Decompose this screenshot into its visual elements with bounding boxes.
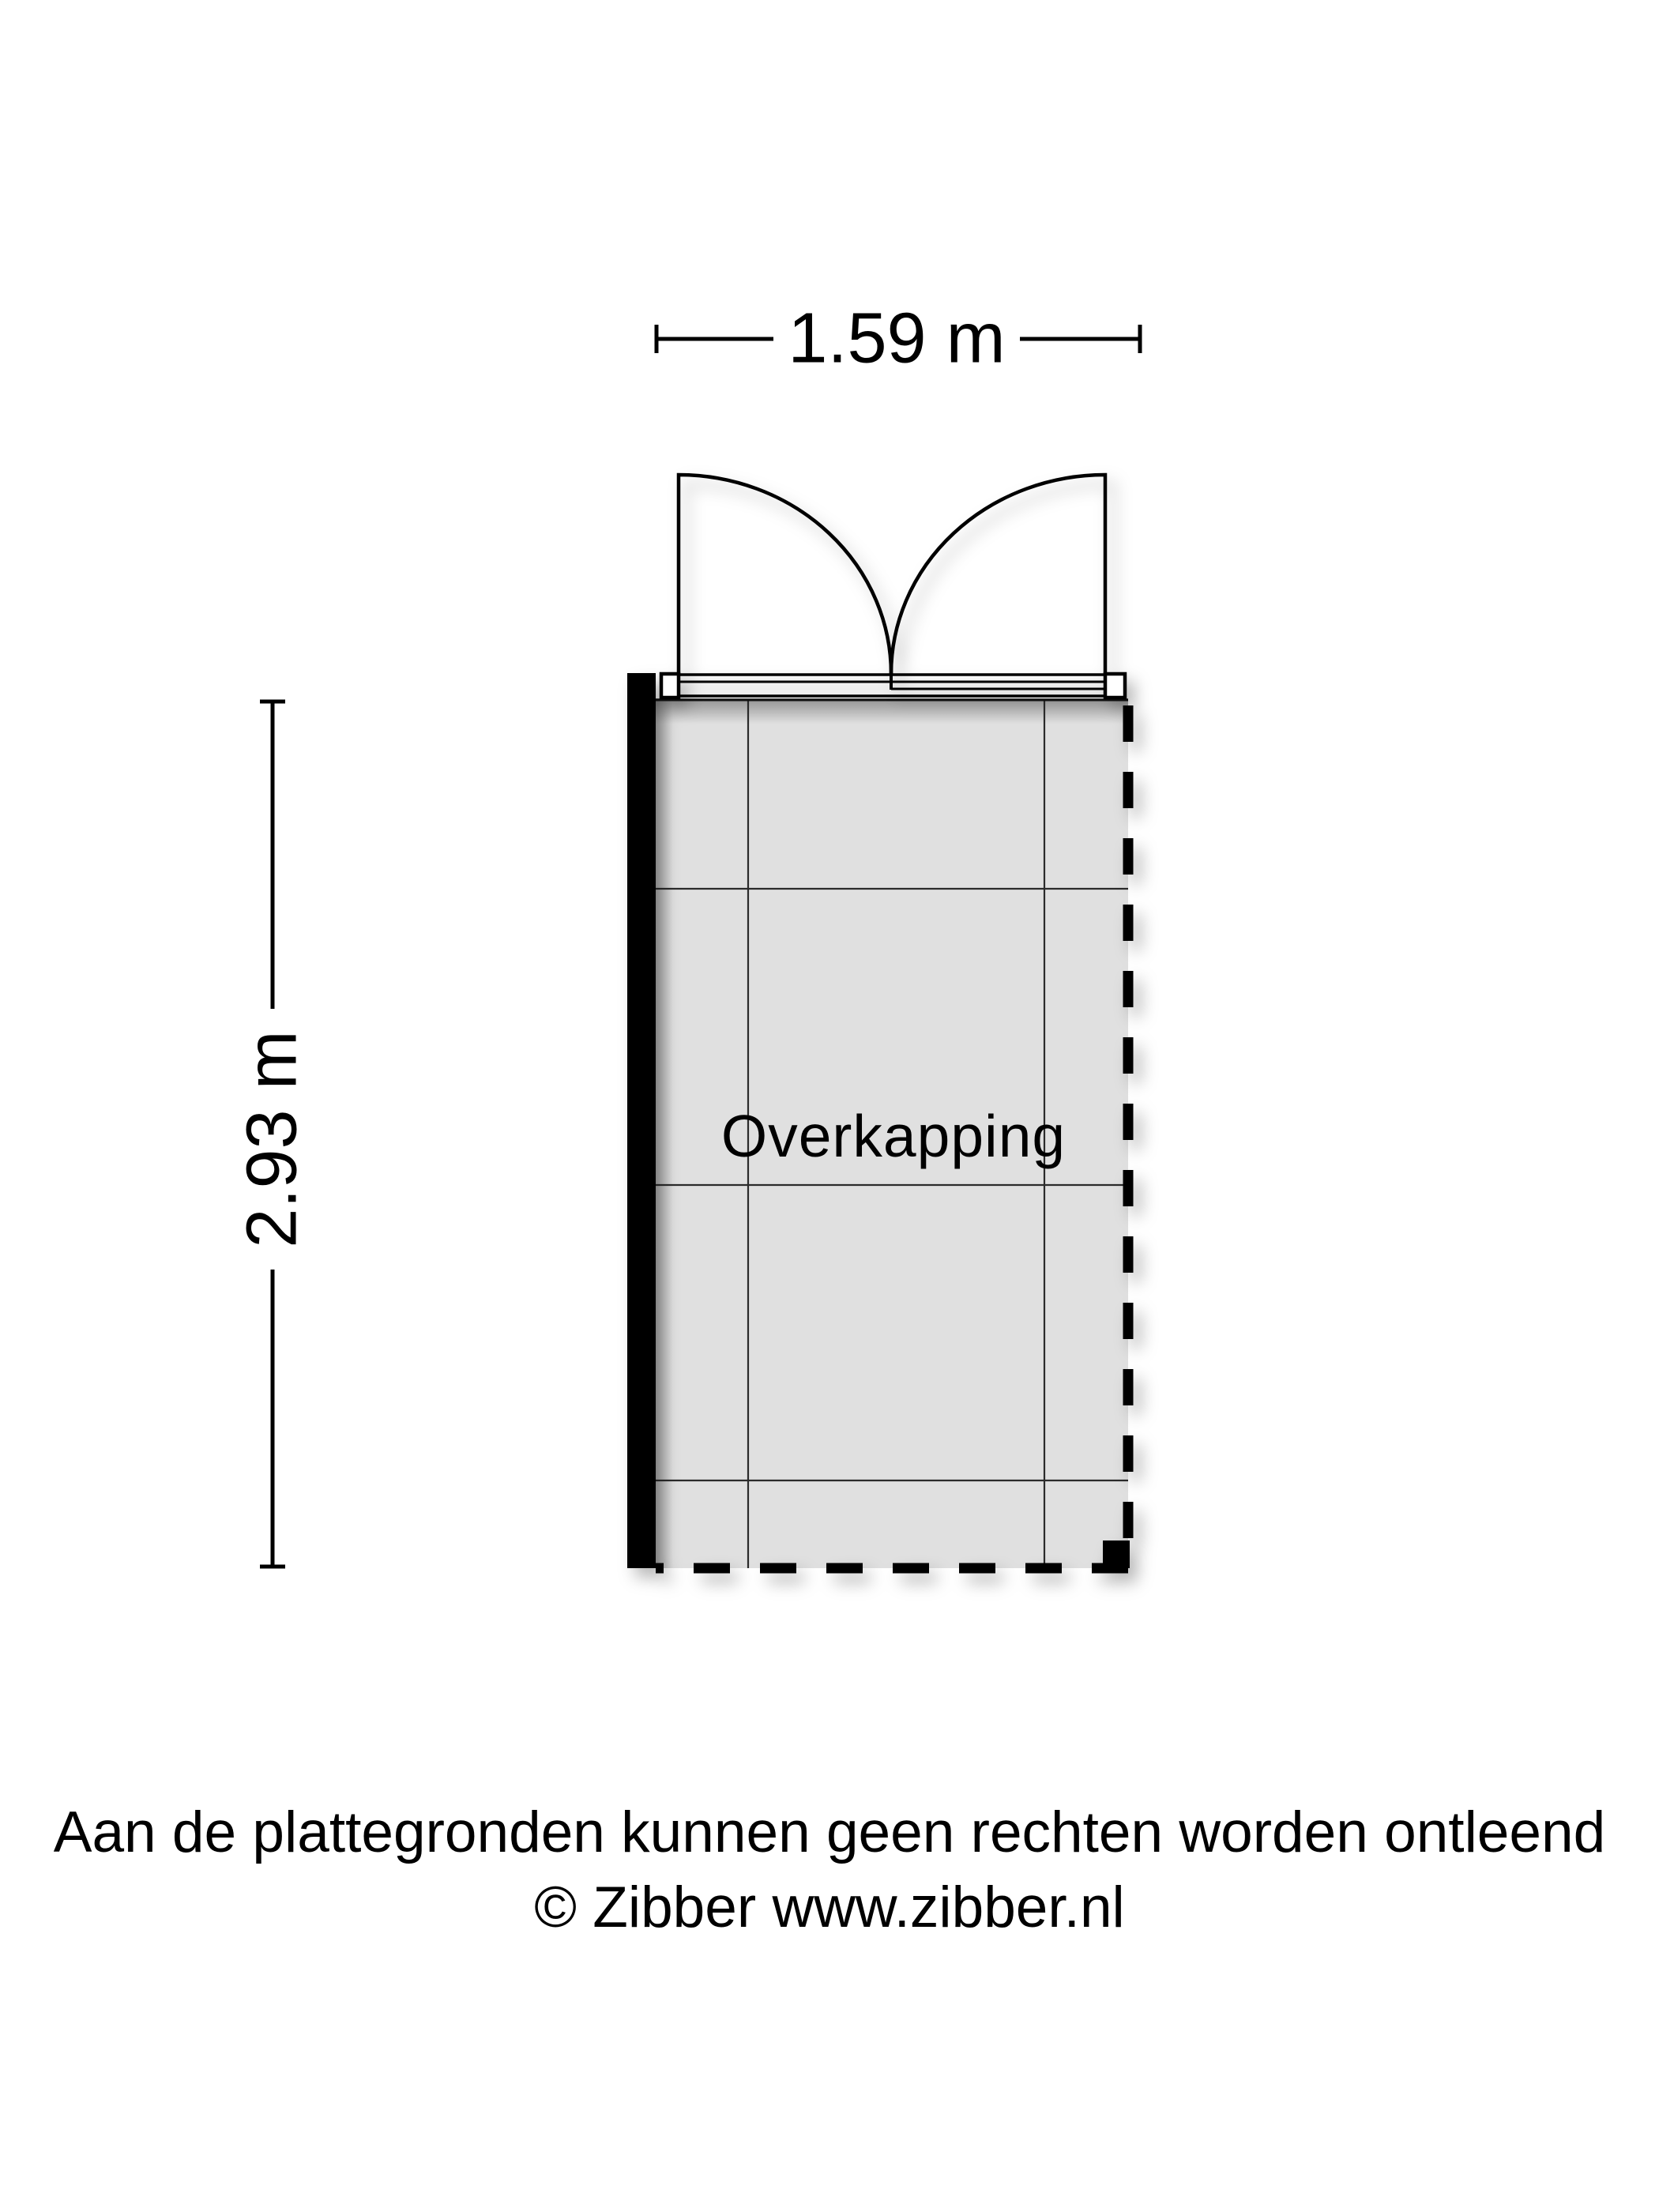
floorplan-page: 1.59 m 2.93 m Overkapping Aan de platteg…: [0, 0, 1659, 2212]
floor-shadow-left: [656, 698, 673, 1568]
door-leaf-left-swing: [679, 475, 891, 674]
door-post-right: [1105, 674, 1125, 698]
height-dimension-label: 2.93 m: [232, 1030, 314, 1247]
width-dimension-label: 1.59 m: [788, 299, 1005, 380]
floor-shadow-top: [656, 698, 1128, 724]
left-wall: [627, 673, 656, 1568]
door-post-left: [661, 674, 679, 698]
corner-post: [1103, 1540, 1130, 1568]
double-door-symbol: [679, 475, 1105, 674]
door-leaf-right-swing: [891, 475, 1105, 674]
disclaimer-text: Aan de plattegronden kunnen geen rechten…: [0, 1795, 1659, 1870]
room-label: Overkapping: [721, 1102, 1066, 1170]
door-sill: [661, 674, 1125, 698]
footer: Aan de plattegronden kunnen geen rechten…: [0, 1795, 1659, 1945]
copyright-text: © Zibber www.zibber.nl: [0, 1870, 1659, 1945]
